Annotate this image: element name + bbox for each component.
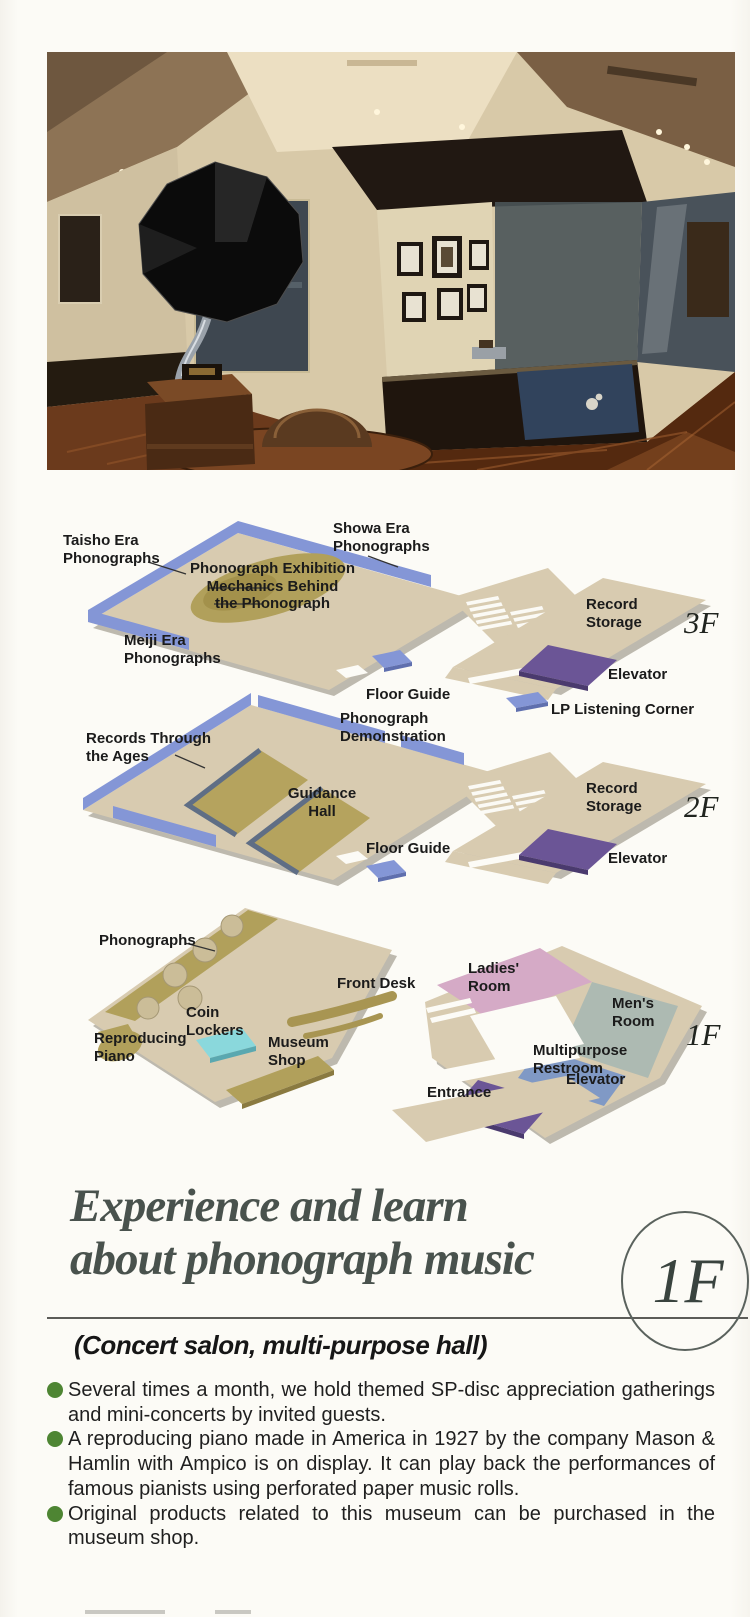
label-demonstration: Phonograph Demonstration [340,710,446,745]
label-elevator-2f: Elevator [608,850,667,868]
museum-photo [47,52,735,470]
bullet-text: Original products related to this museum… [68,1503,715,1550]
floor-letter-1f: 1F [686,1020,720,1050]
label-record-storage-3f: Record Storage [586,596,642,631]
label-guidance-hall: Guidance Hall [282,785,362,820]
label-floor-guide-2f: Floor Guide [366,840,450,858]
page-title-line2: about phonograph music [70,1233,690,1286]
label-floor-guide-3f: Floor Guide [366,686,450,704]
floor-badge-circle: 1F [621,1211,749,1351]
label-mens-room: Men's Room [612,995,655,1030]
bullet-icon [47,1506,63,1522]
label-records-ages: Records Through the Ages [86,730,211,765]
label-museum-shop: Museum Shop [268,1034,329,1069]
label-exhibition: Phonograph Exhibition Mechanics Behind t… [180,560,365,613]
bullet-icon [47,1431,63,1447]
bullet-list: Several times a month, we hold themed SP… [47,1378,715,1551]
label-showa-era: Showa Era Phonographs [333,520,430,555]
bullet-text: Several times a month, we hold themed SP… [68,1379,715,1426]
bullet-item: Several times a month, we hold themed SP… [47,1378,715,1427]
label-reproducing-piano: Reproducing Piano [94,1030,187,1065]
scan-artifact [215,1610,251,1614]
label-meiji-era: Meiji Era Phonographs [124,632,221,667]
label-lp-corner: LP Listening Corner [551,701,694,719]
label-elevator-1f: Elevator [566,1071,625,1089]
label-entrance: Entrance [427,1084,491,1102]
page-title: Experience and learn about phonograph mu… [70,1180,690,1286]
bullet-icon [47,1382,63,1398]
scan-artifact [85,1610,165,1614]
label-ladies-room: Ladies' Room [468,960,519,995]
subtitle: (Concert salon, multi-purpose hall) [74,1330,487,1361]
label-coin-lockers: Coin Lockers [186,1004,244,1039]
label-phonographs: Phonographs [99,932,196,950]
brochure-page: Taisho Era Phonographs Showa Era Phonogr… [0,0,750,1617]
floor-letter-3f: 3F [684,608,718,638]
bullet-item: Original products related to this museum… [47,1502,715,1551]
label-taisho-era: Taisho Era Phonographs [63,532,160,567]
bullet-item: A reproducing piano made in America in 1… [47,1427,715,1501]
bullet-text: A reproducing piano made in America in 1… [68,1428,715,1499]
label-record-storage-2f: Record Storage [586,780,642,815]
page-title-line1: Experience and learn [70,1180,690,1233]
floor-letter-2f: 2F [684,792,718,822]
label-front-desk: Front Desk [337,975,415,993]
label-elevator-3f: Elevator [608,666,667,684]
floor-badge-text: 1F [646,1244,723,1318]
